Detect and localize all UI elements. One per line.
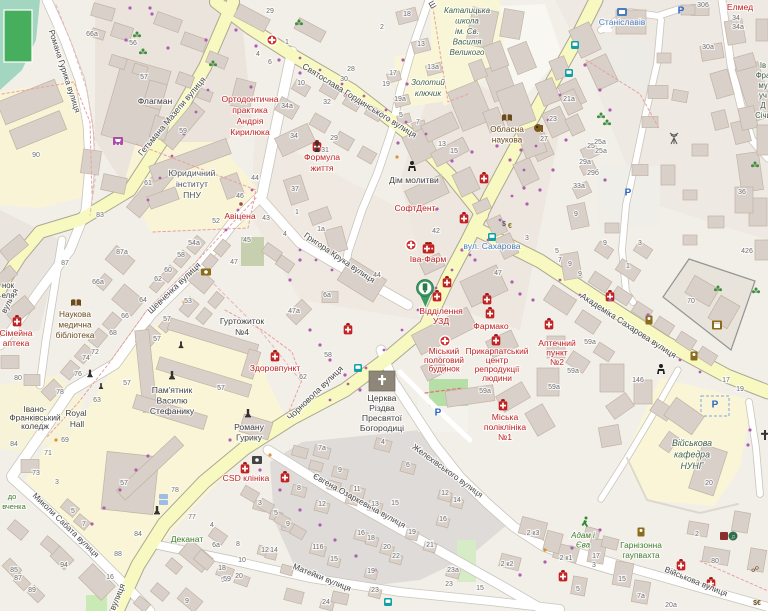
svg-text:P: P [712, 400, 719, 411]
svg-text:13: 13 [438, 141, 446, 148]
svg-text:21а: 21а [563, 96, 575, 103]
svg-text:19: 19 [367, 568, 375, 575]
svg-text:4: 4 [210, 522, 214, 529]
svg-text:СофтДент: СофтДент [394, 203, 435, 213]
svg-text:70: 70 [687, 298, 695, 305]
svg-text:наукова: наукова [492, 135, 523, 145]
svg-text:19: 19 [736, 386, 744, 393]
svg-text:146: 146 [632, 377, 644, 384]
svg-text:Елмед: Елмед [727, 2, 753, 12]
svg-text:Hall: Hall [70, 419, 84, 429]
svg-text:бібліотека: бібліотека [56, 330, 95, 340]
svg-text:13а: 13а [427, 64, 439, 71]
svg-text:2: 2 [380, 24, 384, 31]
svg-text:25а: 25а [595, 148, 607, 155]
svg-text:Здоровпункт: Здоровпункт [250, 363, 301, 373]
svg-text:Богородиці: Богородиці [360, 423, 404, 433]
svg-text:34: 34 [732, 15, 740, 22]
svg-text:2 к2: 2 к2 [501, 561, 514, 568]
svg-text:1: 1 [626, 263, 630, 270]
svg-text:68: 68 [109, 330, 117, 337]
svg-text:нок: нок [2, 281, 15, 290]
svg-text:P: P [625, 188, 632, 199]
svg-text:му: му [758, 81, 767, 90]
svg-text:46: 46 [236, 193, 244, 200]
svg-text:1: 1 [285, 39, 289, 46]
svg-text:45: 45 [243, 237, 251, 244]
svg-text:9: 9 [286, 521, 290, 528]
svg-text:Стефанику: Стефанику [150, 406, 195, 416]
svg-text:7: 7 [416, 119, 420, 126]
svg-text:43: 43 [262, 215, 270, 222]
svg-text:34а: 34а [732, 24, 744, 31]
svg-text:57: 57 [120, 480, 128, 487]
svg-text:71: 71 [44, 450, 52, 457]
svg-text:$: $ [502, 221, 506, 228]
svg-text:пункт: пункт [546, 348, 568, 358]
svg-text:18: 18 [218, 565, 226, 572]
svg-text:84: 84 [134, 531, 142, 538]
svg-text:Церква: Церква [368, 393, 397, 403]
svg-text:56: 56 [129, 40, 137, 47]
svg-text:☍: ☍ [751, 565, 759, 574]
svg-text:НУНГ: НУНГ [680, 461, 704, 471]
svg-text:4: 4 [256, 51, 260, 58]
svg-text:63: 63 [93, 397, 101, 404]
svg-text:30: 30 [340, 76, 348, 83]
svg-text:гаупвахта: гаупвахта [622, 550, 660, 560]
svg-text:59а: 59а [584, 339, 596, 346]
svg-text:Різдва: Різдва [369, 403, 395, 413]
svg-text:14: 14 [270, 547, 278, 554]
svg-text:57: 57 [140, 74, 148, 81]
svg-text:80: 80 [14, 375, 22, 382]
svg-text:58: 58 [324, 352, 332, 359]
svg-text:Royal: Royal [65, 408, 86, 418]
svg-text:3: 3 [592, 562, 596, 569]
svg-text:23: 23 [549, 116, 557, 123]
svg-text:10: 10 [238, 557, 246, 564]
svg-text:29а: 29а [579, 159, 591, 166]
svg-text:3: 3 [638, 240, 642, 247]
svg-text:12: 12 [441, 490, 449, 497]
svg-text:17: 17 [722, 377, 730, 384]
svg-text:66а: 66а [86, 31, 98, 38]
svg-text:20а: 20а [665, 602, 677, 609]
svg-text:1а: 1а [317, 226, 325, 233]
svg-text:25а: 25а [594, 139, 606, 146]
svg-text:1: 1 [295, 209, 299, 216]
svg-text:вул. Сахарова: вул. Сахарова [463, 241, 520, 251]
svg-text:Сімейна: Сімейна [0, 328, 33, 338]
svg-text:58: 58 [177, 252, 185, 259]
svg-text:Міська: Міська [492, 412, 519, 422]
svg-text:Іва-Фарм: Іва-Фарм [410, 254, 447, 264]
svg-text:уч: уч [759, 91, 767, 100]
svg-text:32: 32 [323, 99, 331, 106]
svg-text:Дім молитви: Дім молитви [389, 175, 439, 185]
svg-text:20: 20 [383, 544, 391, 551]
svg-text:3: 3 [55, 479, 59, 486]
svg-text:Обласна: Обласна [490, 124, 524, 134]
svg-text:Андрія: Андрія [237, 116, 264, 126]
svg-text:28: 28 [347, 66, 355, 73]
svg-text:19: 19 [408, 529, 416, 536]
svg-text:5: 5 [71, 508, 75, 515]
svg-text:72: 72 [91, 349, 99, 356]
svg-text:73: 73 [32, 470, 40, 477]
svg-text:Гуртожиток: Гуртожиток [220, 316, 265, 326]
svg-text:ключик: ключик [415, 89, 443, 98]
svg-text:9: 9 [185, 598, 189, 605]
svg-text:47: 47 [230, 259, 238, 266]
svg-text:23: 23 [445, 581, 453, 588]
svg-text:33а: 33а [573, 183, 585, 190]
svg-text:53: 53 [184, 298, 192, 305]
svg-text:8: 8 [297, 485, 301, 492]
svg-text:Кирилюка: Кирилюка [230, 127, 270, 137]
svg-text:77: 77 [188, 514, 196, 521]
svg-text:20: 20 [705, 480, 713, 487]
svg-text:21: 21 [426, 542, 434, 549]
svg-text:2 к1: 2 к1 [560, 555, 573, 562]
svg-text:8: 8 [236, 541, 240, 548]
svg-text:89: 89 [28, 587, 36, 594]
svg-text:кафедра: кафедра [674, 450, 710, 460]
svg-text:Юридичний: Юридичний [169, 168, 216, 178]
svg-text:5: 5 [399, 112, 403, 119]
svg-text:♫: ♫ [731, 535, 736, 541]
svg-text:№2: №2 [550, 357, 564, 367]
svg-text:11: 11 [353, 486, 360, 493]
svg-text:19а: 19а [394, 96, 406, 103]
svg-text:Пам'ятник: Пам'ятник [152, 385, 193, 395]
svg-text:61: 61 [144, 180, 152, 187]
svg-text:17: 17 [592, 553, 600, 560]
svg-text:30а: 30а [702, 44, 714, 51]
svg-text:59: 59 [179, 128, 187, 135]
svg-text:66: 66 [121, 313, 129, 320]
svg-text:62: 62 [299, 374, 307, 381]
svg-text:поліклініка: поліклініка [484, 422, 527, 432]
svg-text:CSD клініка: CSD клініка [223, 473, 270, 483]
svg-text:€: € [508, 223, 512, 230]
svg-text:74: 74 [82, 355, 90, 362]
svg-text:57: 57 [217, 385, 225, 392]
svg-text:23: 23 [371, 587, 379, 594]
svg-text:17: 17 [389, 70, 397, 77]
svg-text:27: 27 [540, 136, 548, 143]
svg-text:36: 36 [738, 189, 746, 196]
svg-text:життя: життя [310, 163, 333, 173]
svg-text:16: 16 [439, 516, 447, 523]
svg-text:24: 24 [322, 599, 330, 606]
svg-text:6: 6 [268, 59, 272, 66]
svg-text:практика: практика [232, 105, 268, 115]
svg-text:будинок: будинок [428, 364, 459, 374]
svg-text:60: 60 [164, 267, 172, 274]
svg-text:15: 15 [330, 556, 338, 563]
svg-text:54а: 54а [188, 240, 200, 247]
svg-text:83: 83 [96, 212, 104, 219]
svg-text:80: 80 [711, 558, 719, 565]
svg-text:3: 3 [525, 235, 529, 242]
svg-text:29: 29 [266, 8, 274, 15]
svg-text:22: 22 [392, 553, 400, 560]
svg-text:Січи: Січи [755, 111, 768, 120]
svg-text:Василія: Василія [453, 38, 483, 47]
svg-text:9: 9 [574, 211, 578, 218]
svg-text:2 к3: 2 к3 [527, 530, 540, 537]
svg-text:Василю: Василю [156, 396, 188, 406]
svg-text:6: 6 [406, 462, 410, 469]
svg-text:88: 88 [114, 551, 122, 558]
svg-text:16: 16 [106, 574, 114, 581]
svg-text:9: 9 [338, 467, 342, 474]
svg-text:7а: 7а [637, 593, 645, 600]
svg-text:Фармако: Фармако [473, 321, 509, 331]
svg-text:42: 42 [432, 228, 440, 235]
svg-text:Пресвятої: Пресвятої [362, 413, 403, 423]
svg-text:116: 116 [312, 544, 323, 551]
svg-text:306: 306 [697, 2, 709, 9]
svg-text:59а: 59а [567, 368, 579, 375]
svg-text:18: 18 [403, 11, 411, 18]
svg-text:Деканат: Деканат [171, 534, 204, 544]
svg-text:12: 12 [261, 547, 269, 554]
svg-text:13: 13 [417, 41, 425, 48]
svg-text:57: 57 [153, 336, 161, 343]
svg-text:Ів: Ів [760, 61, 766, 70]
svg-text:10: 10 [297, 80, 305, 87]
svg-text:Флагман: Флагман [138, 96, 173, 106]
svg-text:64: 64 [139, 297, 147, 304]
svg-text:Єва: Єва [576, 541, 591, 550]
svg-text:76: 76 [74, 371, 82, 378]
svg-text:коледж: коледж [21, 421, 49, 431]
svg-text:5: 5 [555, 248, 559, 255]
svg-text:Гурику: Гурику [236, 433, 263, 443]
svg-text:16: 16 [357, 530, 365, 537]
svg-text:34: 34 [290, 133, 298, 140]
svg-text:людини: людини [482, 373, 512, 383]
svg-text:медична: медична [58, 320, 92, 330]
svg-text:P: P [435, 408, 442, 419]
svg-text:84: 84 [10, 441, 18, 448]
svg-text:52: 52 [212, 218, 220, 225]
svg-text:4: 4 [381, 439, 385, 446]
svg-text:57: 57 [163, 316, 171, 323]
svg-text:12: 12 [318, 501, 326, 508]
svg-text:13: 13 [371, 501, 379, 508]
svg-text:19: 19 [382, 81, 390, 88]
svg-text:37: 37 [291, 186, 299, 193]
svg-text:20: 20 [235, 573, 243, 580]
svg-text:школа: школа [455, 17, 479, 26]
svg-text:85: 85 [10, 567, 18, 574]
svg-text:Військова: Військова [672, 438, 712, 448]
svg-text:інститут: інститут [176, 179, 208, 189]
svg-text:34а: 34а [281, 103, 293, 110]
svg-text:78: 78 [56, 389, 64, 396]
svg-text:66а: 66а [92, 279, 104, 286]
svg-text:2: 2 [695, 531, 699, 538]
svg-text:426: 426 [741, 248, 753, 255]
svg-text:7: 7 [82, 521, 86, 528]
svg-text:31: 31 [321, 147, 329, 154]
svg-text:14: 14 [453, 497, 461, 504]
svg-text:87: 87 [61, 260, 69, 267]
svg-text:18: 18 [367, 535, 375, 542]
svg-text:Авіцена: Авіцена [224, 211, 256, 221]
svg-text:ім. Св.: ім. Св. [455, 27, 479, 36]
svg-text:Відділення: Відділення [419, 306, 463, 316]
svg-text:Великого: Великого [449, 48, 485, 57]
svg-text:47а: 47а [288, 308, 300, 315]
svg-text:87: 87 [14, 575, 22, 582]
svg-text:44: 44 [373, 272, 381, 279]
svg-text:Золотий: Золотий [411, 78, 445, 87]
svg-text:59а: 59а [479, 388, 491, 395]
svg-text:29: 29 [330, 135, 338, 142]
svg-text:6а: 6а [212, 542, 220, 549]
svg-text:№4: №4 [235, 327, 249, 337]
svg-text:44: 44 [251, 175, 259, 182]
svg-text:№1: №1 [498, 432, 512, 442]
svg-text:Станіславів: Станіславів [599, 17, 646, 27]
svg-text:94: 94 [60, 562, 68, 569]
svg-text:6а: 6а [323, 292, 331, 299]
svg-text:УЗД: УЗД [433, 316, 449, 326]
svg-text:9: 9 [603, 240, 607, 247]
svg-text:23а: 23а [447, 567, 459, 574]
svg-text:15: 15 [391, 500, 399, 507]
svg-text:9: 9 [578, 271, 582, 278]
svg-text:90: 90 [32, 152, 40, 159]
svg-text:Гарнізонна: Гарнізонна [620, 540, 662, 550]
svg-text:Ортодонтична: Ортодонтична [222, 94, 279, 104]
svg-text:аптека: аптека [3, 338, 30, 348]
svg-text:вченка: вченка [2, 502, 26, 511]
svg-text:87а: 87а [116, 249, 128, 256]
svg-text:59а: 59а [548, 384, 560, 391]
svg-text:Адам і: Адам і [570, 531, 595, 540]
svg-text:4: 4 [283, 231, 287, 238]
svg-text:P: P [678, 6, 685, 17]
svg-text:62: 62 [154, 276, 162, 283]
svg-text:3: 3 [258, 500, 262, 507]
svg-text:еля: еля [2, 291, 15, 300]
svg-text:29б: 29б [587, 169, 599, 177]
svg-text:9: 9 [568, 261, 572, 268]
svg-text:5: 5 [274, 510, 278, 517]
svg-text:Наукова: Наукова [59, 309, 91, 319]
svg-text:Аптечний: Аптечний [538, 338, 576, 348]
svg-text:47: 47 [494, 270, 502, 277]
svg-text:78: 78 [171, 487, 179, 494]
svg-text:57: 57 [123, 380, 131, 387]
svg-text:69: 69 [61, 437, 69, 444]
svg-text:7а: 7а [318, 445, 326, 452]
svg-text:Каталицька: Каталицька [444, 6, 491, 15]
svg-text:7: 7 [558, 257, 562, 264]
svg-text:$€: $€ [753, 600, 761, 607]
svg-text:ПНУ: ПНУ [183, 190, 201, 200]
svg-text:15: 15 [476, 585, 484, 592]
svg-text:до: до [8, 492, 17, 501]
svg-text:15: 15 [618, 576, 626, 583]
svg-text:59: 59 [223, 576, 231, 583]
svg-text:15: 15 [450, 148, 458, 155]
svg-text:Д: Д [760, 101, 766, 110]
svg-text:Фра: Фра [756, 71, 768, 80]
svg-text:Роману: Роману [234, 422, 265, 432]
svg-text:5: 5 [576, 586, 580, 593]
